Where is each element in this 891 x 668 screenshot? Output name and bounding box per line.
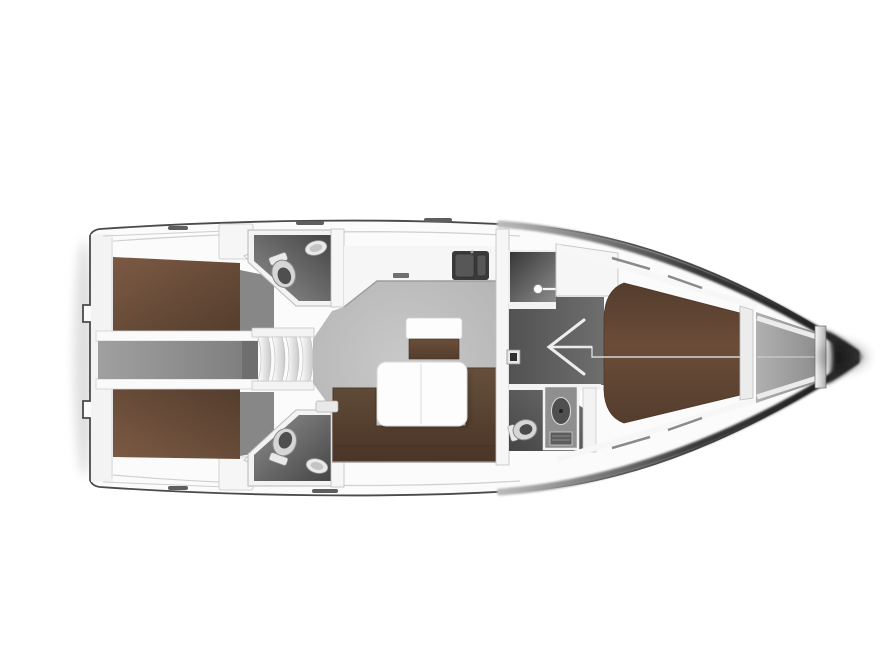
yacht-floor-plan-svg bbox=[0, 0, 891, 668]
corridor-wall-top bbox=[96, 331, 258, 341]
folding-table-leaf bbox=[406, 318, 462, 339]
double-berth-starboard bbox=[113, 389, 240, 459]
counter-item bbox=[393, 273, 409, 278]
companionway-steps bbox=[252, 328, 314, 390]
step-rail-top bbox=[252, 328, 314, 337]
side-step bbox=[316, 401, 338, 412]
faucet-icon bbox=[471, 251, 474, 254]
main-bulkhead bbox=[496, 229, 509, 465]
saloon-table bbox=[377, 362, 467, 426]
corridor bbox=[96, 331, 258, 389]
deck-hatch-icon bbox=[312, 489, 338, 493]
deck-hatch-icon bbox=[424, 218, 452, 222]
shower-wall bbox=[509, 302, 558, 309]
berth-headboard bbox=[740, 306, 753, 400]
head-divider-wall bbox=[331, 229, 344, 307]
sink-basin-large bbox=[455, 254, 474, 277]
step-rail-bottom bbox=[252, 381, 314, 390]
shower-head-icon bbox=[534, 285, 543, 294]
deck-hatch-icon bbox=[168, 226, 188, 230]
head-divider-wall bbox=[583, 388, 596, 452]
shower-grate bbox=[550, 432, 572, 445]
sink-basin-small bbox=[477, 255, 486, 276]
corridor-wall-bottom bbox=[96, 379, 258, 389]
double-berth-port bbox=[113, 257, 240, 335]
bow-tip-glow bbox=[816, 342, 868, 372]
passage bbox=[507, 297, 604, 390]
corridor-floor bbox=[98, 341, 258, 379]
table-cabinet bbox=[409, 339, 459, 359]
shower-floor bbox=[509, 251, 558, 303]
deck-hatch-icon bbox=[168, 486, 188, 490]
deck-hatch-icon bbox=[296, 221, 324, 225]
corridor-end-shadow bbox=[242, 341, 258, 379]
canvas bbox=[0, 0, 891, 668]
passage-fitting-inner bbox=[510, 353, 517, 361]
shower-room bbox=[509, 251, 558, 309]
drain-icon bbox=[559, 409, 563, 413]
